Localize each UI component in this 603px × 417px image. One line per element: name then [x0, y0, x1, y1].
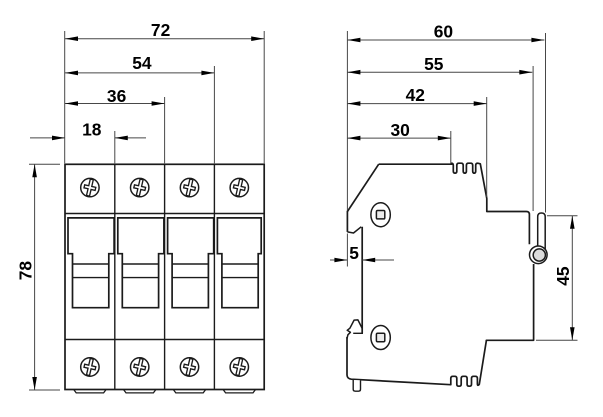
svg-text:36: 36	[107, 86, 127, 106]
svg-text:18: 18	[82, 119, 102, 139]
svg-text:30: 30	[391, 120, 410, 140]
svg-text:60: 60	[434, 21, 453, 41]
svg-text:55: 55	[424, 54, 444, 74]
svg-text:42: 42	[406, 85, 425, 105]
svg-text:78: 78	[16, 261, 36, 281]
svg-text:45: 45	[553, 266, 573, 286]
svg-text:54: 54	[132, 53, 152, 73]
svg-text:72: 72	[151, 20, 170, 40]
svg-text:5: 5	[349, 243, 359, 263]
